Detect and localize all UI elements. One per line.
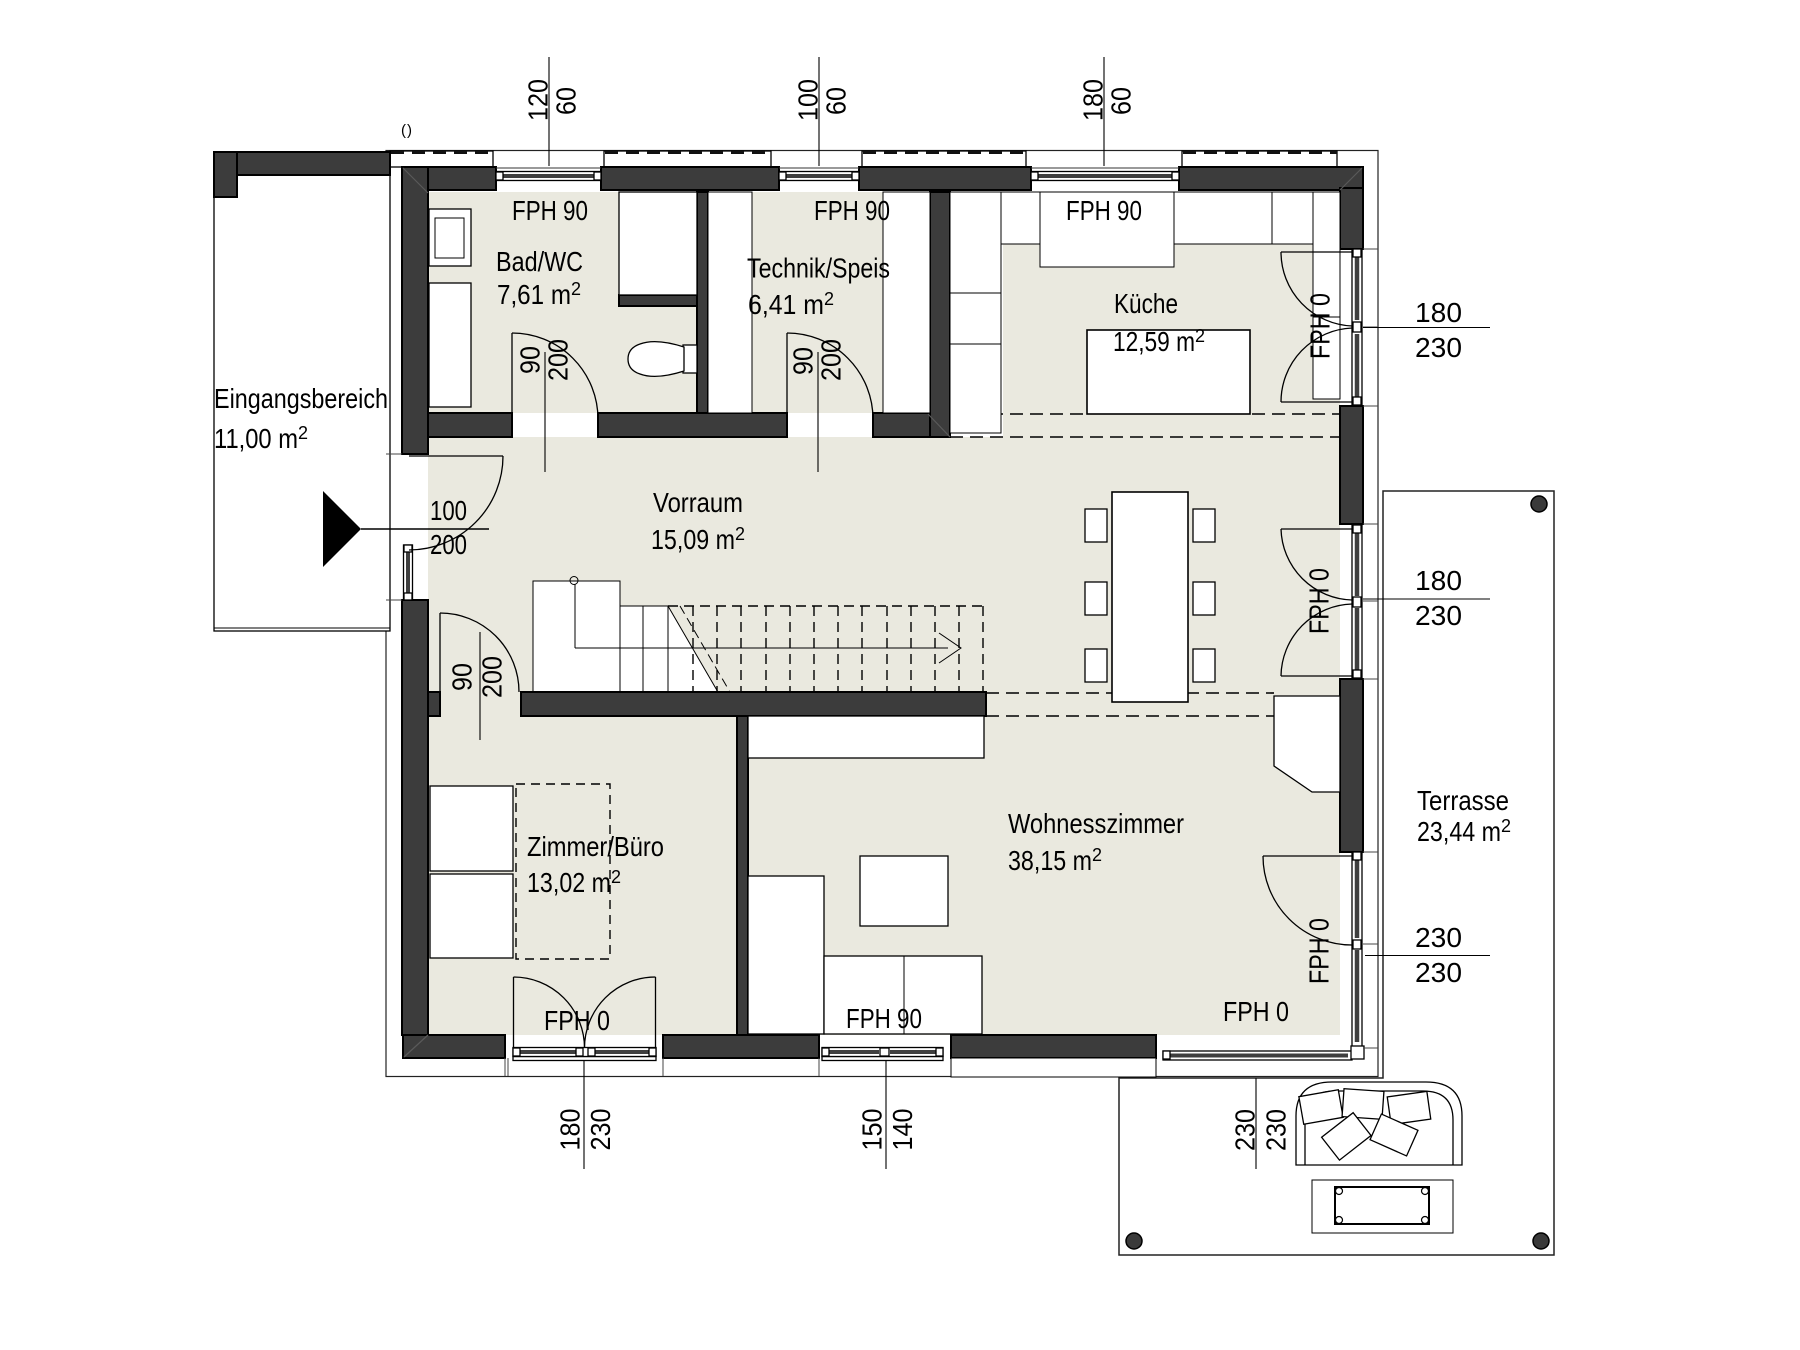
svg-text:200: 200 [477, 656, 508, 698]
svg-text:120: 120 [523, 79, 554, 121]
svg-text:230: 230 [1261, 1109, 1292, 1151]
svg-text:140: 140 [887, 1109, 918, 1151]
svg-text:13,02 m2: 13,02 m2 [527, 867, 621, 898]
svg-text:23,44 m2: 23,44 m2 [1417, 816, 1511, 847]
svg-text:90: 90 [447, 663, 478, 691]
svg-text:230: 230 [1415, 922, 1462, 953]
svg-text:230: 230 [585, 1109, 616, 1151]
svg-text:180: 180 [1415, 297, 1462, 328]
svg-text:6,41 m2: 6,41 m2 [748, 289, 834, 320]
svg-text:12,59 m2: 12,59 m2 [1113, 326, 1205, 357]
svg-text:180: 180 [1415, 565, 1462, 596]
svg-text:FPH 90: FPH 90 [814, 195, 890, 226]
svg-text:11,00 m2: 11,00 m2 [214, 423, 308, 454]
svg-text:FPH 0: FPH 0 [1305, 293, 1336, 359]
svg-text:230: 230 [1415, 332, 1462, 363]
svg-text:(): () [401, 122, 413, 139]
svg-text:Bad/WC: Bad/WC [496, 246, 583, 277]
svg-text:Wohnesszimmer: Wohnesszimmer [1008, 808, 1184, 839]
svg-text:Vorraum: Vorraum [653, 487, 743, 518]
svg-text:Eingangsbereich: Eingangsbereich [214, 383, 388, 414]
svg-text:FPH 90: FPH 90 [1066, 195, 1142, 226]
svg-text:38,15 m2: 38,15 m2 [1008, 845, 1102, 876]
svg-text:100: 100 [793, 79, 824, 121]
svg-text:60: 60 [551, 87, 582, 115]
svg-text:7,61 m2: 7,61 m2 [497, 279, 581, 310]
svg-text:FPH 90: FPH 90 [512, 195, 588, 226]
svg-text:Küche: Küche [1114, 288, 1178, 319]
svg-text:FPH 90: FPH 90 [846, 1003, 922, 1034]
svg-text:200: 200 [430, 529, 467, 560]
svg-text:FPH 0: FPH 0 [544, 1005, 610, 1036]
svg-text:150: 150 [857, 1109, 888, 1151]
svg-text:60: 60 [1106, 87, 1137, 115]
svg-text:FPH 0: FPH 0 [1304, 918, 1335, 984]
svg-text:230: 230 [1230, 1109, 1261, 1151]
svg-text:Technik/Speis: Technik/Speis [747, 253, 890, 284]
svg-text:Zimmer/Büro: Zimmer/Büro [527, 831, 664, 862]
svg-text:90: 90 [788, 347, 819, 375]
svg-text:90: 90 [515, 346, 546, 374]
svg-text:180: 180 [1078, 79, 1109, 121]
svg-text:FPH 0: FPH 0 [1304, 568, 1335, 634]
svg-text:Terrasse: Terrasse [1417, 785, 1509, 816]
svg-text:180: 180 [555, 1109, 586, 1151]
svg-text:15,09 m2: 15,09 m2 [651, 524, 745, 555]
svg-text:200: 200 [543, 339, 574, 381]
svg-text:230: 230 [1415, 957, 1462, 988]
svg-text:230: 230 [1415, 600, 1462, 631]
svg-text:200: 200 [816, 339, 847, 381]
svg-text:100: 100 [430, 495, 467, 526]
svg-text:FPH 0: FPH 0 [1223, 996, 1289, 1027]
svg-text:60: 60 [821, 87, 852, 115]
